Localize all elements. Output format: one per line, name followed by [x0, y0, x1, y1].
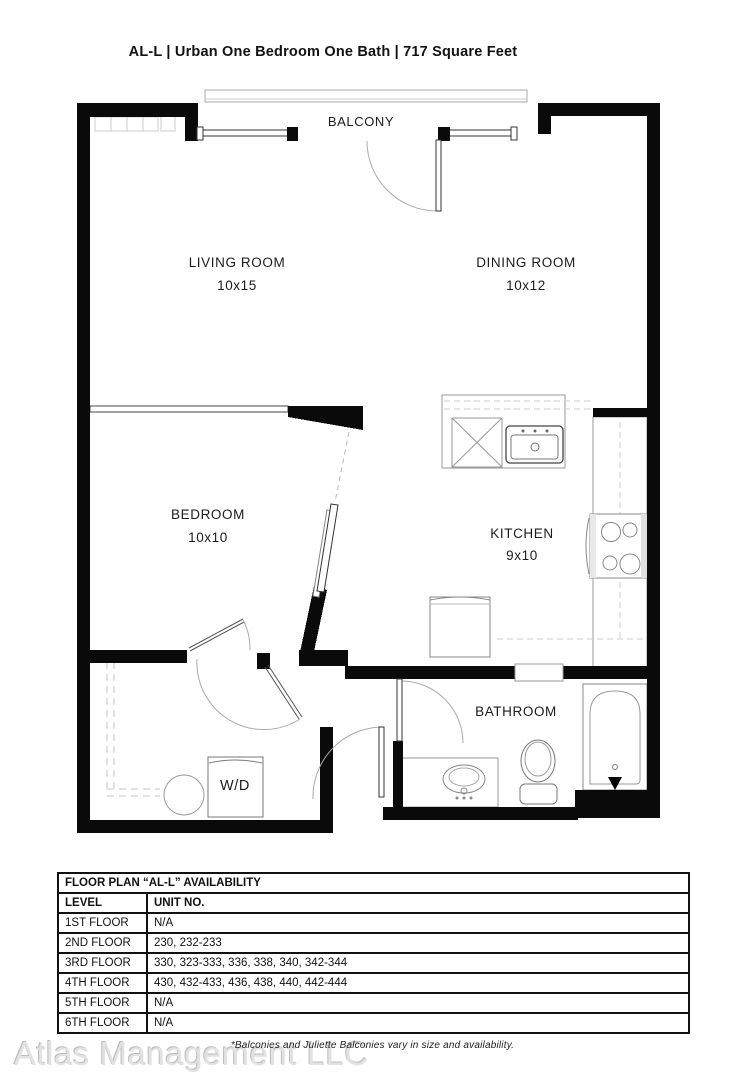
- bathroom-wall-niche: [515, 664, 563, 681]
- level-cell: 2ND FLOOR: [58, 933, 147, 953]
- kitchen-sink: [506, 426, 563, 463]
- table-header-row: LEVEL UNIT NO.: [58, 893, 689, 913]
- units-cell: 330, 323-333, 336, 338, 340, 342-344: [147, 953, 689, 973]
- closet-dashed-lines: [107, 662, 160, 796]
- walls: [77, 103, 660, 833]
- availability-table: FLOOR PLAN “AL-L” AVAILABILITY LEVEL UNI…: [57, 872, 690, 1034]
- units-cell: 230, 232-233: [147, 933, 689, 953]
- table-row: 3RD FLOOR 330, 323-333, 336, 338, 340, 3…: [58, 953, 689, 973]
- units-cell: N/A: [147, 1013, 689, 1033]
- table-title-row: FLOOR PLAN “AL-L” AVAILABILITY: [58, 873, 689, 893]
- table-row: 1ST FLOOR N/A: [58, 913, 689, 933]
- table-row: 4TH FLOOR 430, 432-433, 436, 438, 440, 4…: [58, 973, 689, 993]
- balcony-label: BALCONY: [328, 114, 394, 129]
- table-title: FLOOR PLAN “AL-L” AVAILABILITY: [58, 873, 689, 893]
- balcony-door: [367, 140, 441, 211]
- level-cell: 3RD FLOOR: [58, 953, 147, 973]
- balcony-window-right: [450, 127, 517, 140]
- level-cell: 5TH FLOOR: [58, 993, 147, 1013]
- table-row: 6TH FLOOR N/A: [58, 1013, 689, 1033]
- bathroom-door: [397, 679, 463, 743]
- balcony-window-left: [197, 127, 287, 140]
- washer-dryer-label: W/D: [220, 778, 250, 794]
- vanity-sink: [402, 758, 498, 807]
- floor-plan: BALCONY LIVING ROOM 10x15 DINING ROOM 10…: [0, 0, 745, 860]
- bedroom-closet-door: [189, 619, 250, 651]
- dining-room-label: DINING ROOM: [476, 255, 576, 270]
- kitchen-dims: 9x10: [506, 548, 538, 563]
- bathroom-label: BATHROOM: [475, 704, 557, 719]
- bedroom-label: BEDROOM: [171, 507, 245, 522]
- bedroom-sliding-door: [313, 432, 349, 597]
- refrigerator: [430, 597, 490, 657]
- living-room-label: LIVING ROOM: [189, 255, 286, 270]
- baseboard-heater: [95, 116, 175, 131]
- units-cell: N/A: [147, 913, 689, 933]
- living-room-dims: 10x15: [217, 278, 257, 293]
- flyer-page: AL-L | Urban One Bedroom One Bath | 717 …: [0, 0, 745, 1080]
- hall-door: [197, 659, 302, 730]
- level-cell: 1ST FLOOR: [58, 913, 147, 933]
- bedroom-dims: 10x10: [188, 530, 228, 545]
- level-header: LEVEL: [58, 893, 147, 913]
- dining-room-dims: 10x12: [506, 278, 546, 293]
- pass-through-opening: [90, 406, 288, 412]
- units-cell: 430, 432-433, 436, 438, 440, 442-444: [147, 973, 689, 993]
- washer-circle: [164, 775, 204, 815]
- bathtub: [583, 684, 647, 790]
- level-cell: 4TH FLOOR: [58, 973, 147, 993]
- stove: [586, 514, 648, 578]
- balcony-railing: [205, 90, 527, 102]
- units-cell: N/A: [147, 993, 689, 1013]
- table-row: 5TH FLOOR N/A: [58, 993, 689, 1013]
- level-cell: 6TH FLOOR: [58, 1013, 147, 1033]
- unit-no-header: UNIT NO.: [147, 893, 689, 913]
- table-row: 2ND FLOOR 230, 232-233: [58, 933, 689, 953]
- kitchen-label: KITCHEN: [490, 526, 553, 541]
- toilet: [520, 740, 557, 804]
- footnote: *Balconies and Juliette Balconies vary i…: [0, 1040, 745, 1051]
